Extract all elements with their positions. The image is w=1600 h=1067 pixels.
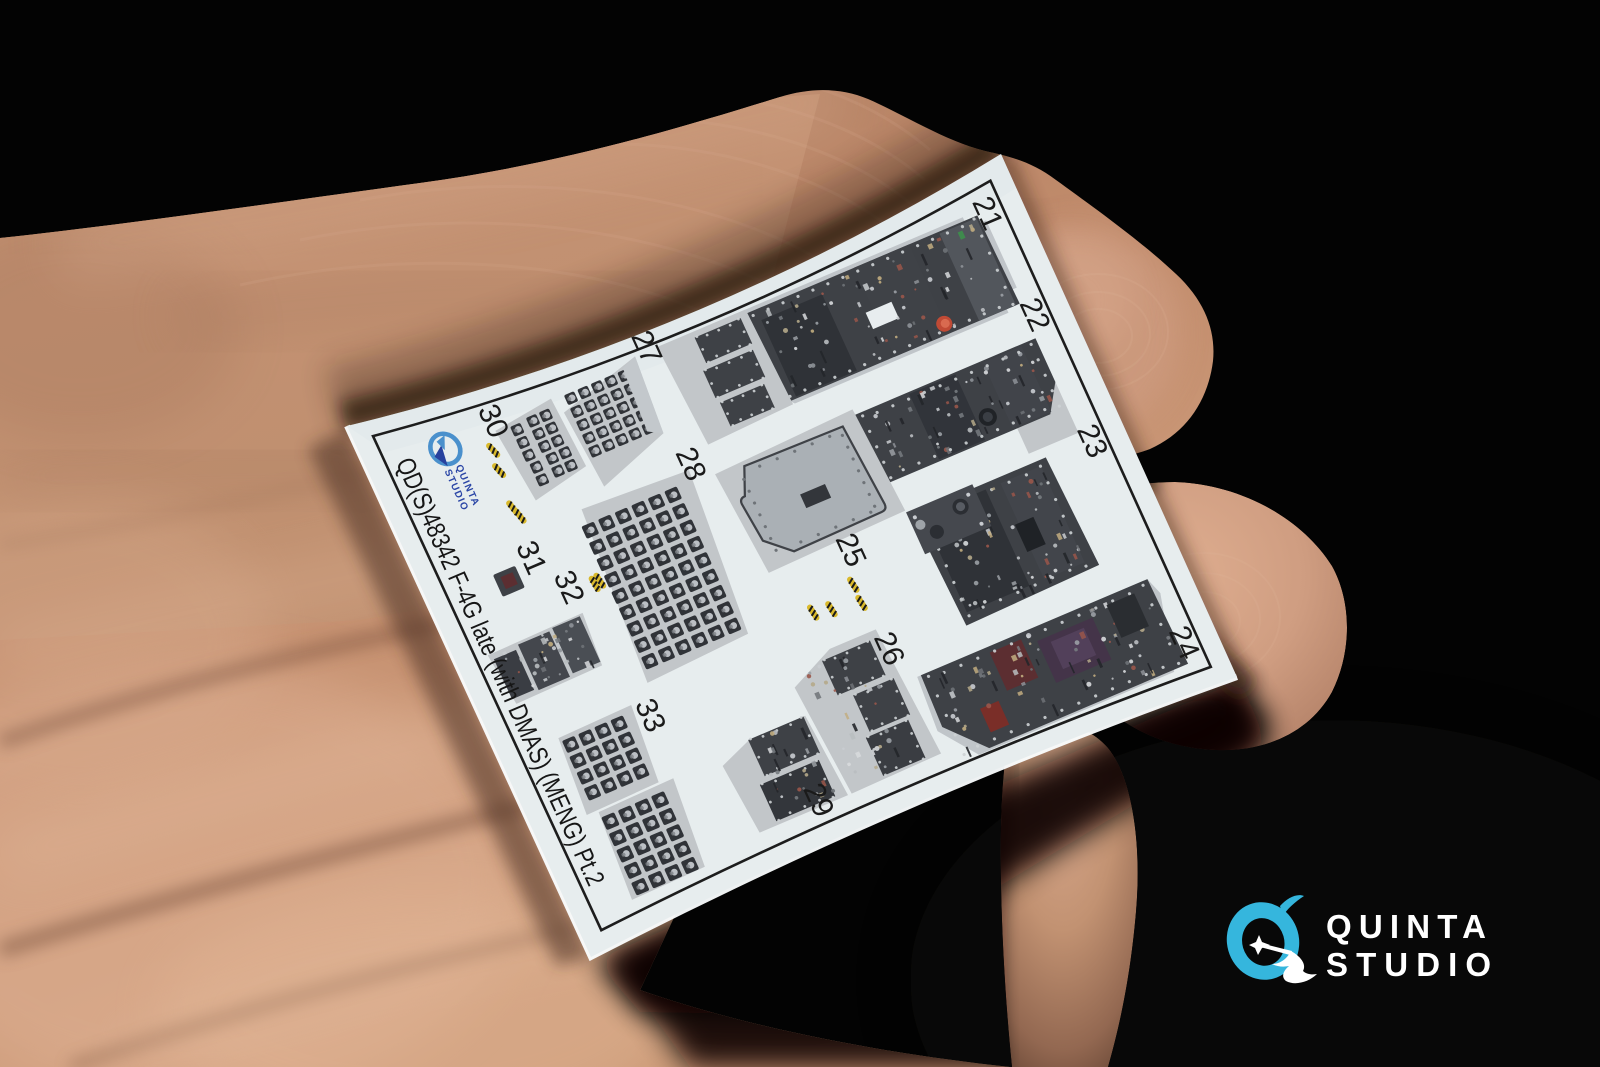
svg-text:STUDIO: STUDIO <box>1326 946 1495 983</box>
svg-text:QUINTA: QUINTA <box>1326 908 1490 945</box>
